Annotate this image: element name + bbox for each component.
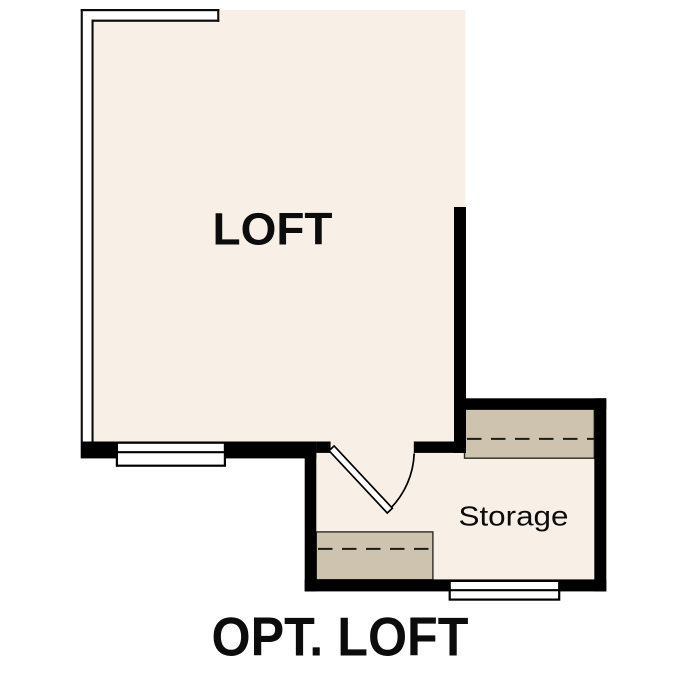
- svg-text:OPT. LOFT: OPT. LOFT: [212, 605, 469, 667]
- svg-text:LOFT: LOFT: [213, 204, 333, 255]
- svg-text:Storage: Storage: [459, 501, 569, 532]
